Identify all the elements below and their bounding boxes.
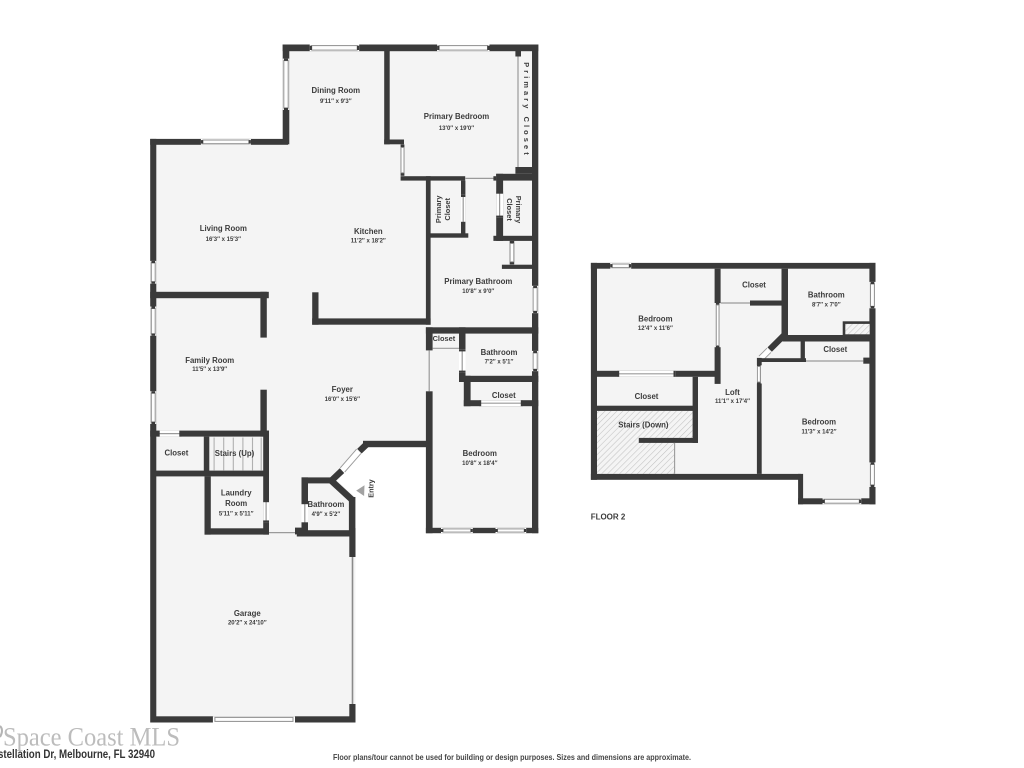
svg-text:Bathroom: Bathroom [307, 500, 344, 509]
svg-text:Primary Bathroom: Primary Bathroom [444, 277, 512, 286]
svg-text:Closet: Closet [742, 281, 766, 290]
svg-text:Closet: Closet [443, 197, 452, 220]
svg-text:Family Room: Family Room [185, 356, 234, 365]
svg-text:11′5″ x 13′9″: 11′5″ x 13′9″ [192, 367, 227, 373]
svg-text:Laundry: Laundry [221, 488, 252, 497]
svg-text:Entry: Entry [366, 479, 375, 497]
svg-text:12′4″ x 11′6″: 12′4″ x 11′6″ [638, 326, 673, 332]
svg-text:4′9″ x 5′2″: 4′9″ x 5′2″ [312, 512, 341, 518]
svg-text:9′11″ x 9′3″: 9′11″ x 9′3″ [320, 99, 352, 105]
svg-text:Kitchen: Kitchen [354, 227, 383, 236]
svg-text:16′0″ x 15′6″: 16′0″ x 15′6″ [325, 397, 360, 403]
svg-text:8′7″ x 7′0″: 8′7″ x 7′0″ [812, 303, 841, 309]
svg-text:Closet: Closet [492, 391, 516, 400]
svg-text:20′2″ x 24′10″: 20′2″ x 24′10″ [228, 620, 267, 626]
svg-text:Bathroom: Bathroom [481, 348, 518, 357]
svg-text:11′1″ x 17′4″: 11′1″ x 17′4″ [715, 399, 750, 405]
svg-text:10′8″ x 18′4″: 10′8″ x 18′4″ [462, 461, 497, 467]
svg-text:stellation Dr, Melbourne, FL 3: stellation Dr, Melbourne, FL 32940 [0, 748, 155, 761]
svg-text:Closet: Closet [164, 449, 188, 458]
svg-text:Living Room: Living Room [200, 224, 247, 233]
svg-text:FLOOR 2: FLOOR 2 [591, 513, 626, 522]
svg-text:Stairs (Down): Stairs (Down) [618, 421, 669, 430]
svg-text:13′0″ x 19′0″: 13′0″ x 19′0″ [439, 126, 474, 132]
svg-text:11′2″ x 18′2″: 11′2″ x 18′2″ [351, 239, 386, 245]
svg-text:7′2″ x 5′1″: 7′2″ x 5′1″ [485, 360, 514, 366]
svg-text:Primary Bedroom: Primary Bedroom [424, 112, 489, 121]
svg-text:Stairs (Up): Stairs (Up) [215, 449, 255, 458]
svg-text:Garage: Garage [234, 609, 262, 618]
svg-text:Bedroom: Bedroom [463, 449, 497, 458]
svg-text:Primary: Primary [434, 195, 443, 223]
svg-text:Closet: Closet [635, 392, 659, 401]
svg-text:Room: Room [225, 499, 247, 508]
svg-text:11′3″ x 14′2″: 11′3″ x 14′2″ [802, 429, 837, 435]
svg-text:16′3″ x 15′3″: 16′3″ x 15′3″ [206, 237, 241, 243]
svg-text:Loft: Loft [725, 388, 740, 397]
svg-text:10′8″ x 9′0″: 10′8″ x 9′0″ [462, 289, 494, 295]
svg-text:Bedroom: Bedroom [638, 315, 672, 324]
svg-text:Bathroom: Bathroom [808, 290, 845, 299]
svg-text:Dining Room: Dining Room [312, 86, 361, 95]
svg-text:Bedroom: Bedroom [802, 417, 836, 426]
svg-text:Floor plans/tour cannot be use: Floor plans/tour cannot be used for buil… [333, 753, 691, 762]
svg-text:Closet: Closet [823, 345, 847, 354]
svg-text:Closet: Closet [505, 198, 514, 221]
svg-text:Primary Closet: Primary Closet [522, 62, 531, 158]
svg-text:Closet: Closet [433, 334, 456, 343]
svg-text:Primary: Primary [514, 196, 523, 224]
svg-text:Foyer: Foyer [332, 385, 353, 394]
svg-text:5′11″ x 5′11″: 5′11″ x 5′11″ [219, 512, 254, 518]
